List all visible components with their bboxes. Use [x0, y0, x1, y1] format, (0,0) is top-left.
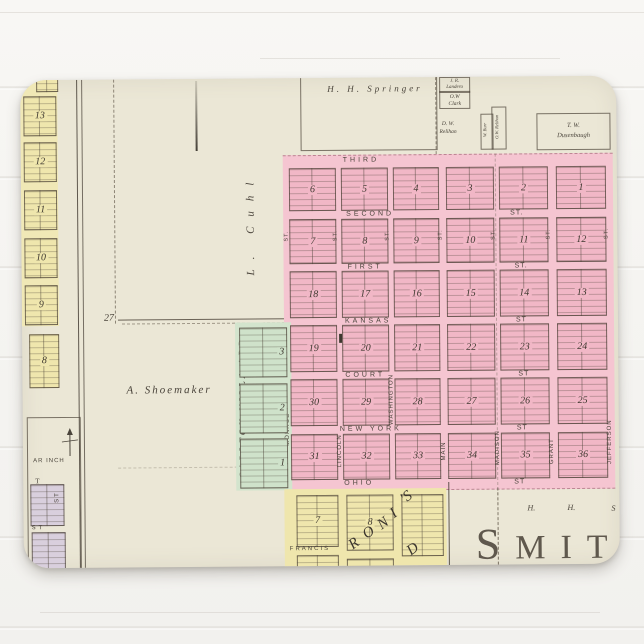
street-label-st: ST	[516, 316, 527, 323]
product-photo: { "palette": { "paper": "#ebe7d6", "pink…	[0, 0, 644, 644]
street-label-ohio: OHIO	[344, 480, 374, 487]
town-title: SMITH	[476, 521, 620, 566]
map-block: 28	[394, 378, 440, 425]
map-block: 22	[447, 324, 495, 371]
road-line	[81, 80, 86, 568]
mousepad: LOCUST 8 27 A. Shoemaker L. Cuhl AR INCH…	[20, 76, 620, 569]
street-label-lincoln: LINCOLN	[337, 433, 343, 469]
wall-groove	[0, 12, 644, 13]
street-label-first: FIRST	[348, 264, 383, 271]
dusenbaugh-parcel: T. W. Dusenbaugh	[536, 113, 610, 151]
map-block: 25	[557, 377, 607, 424]
map-block: 32	[343, 433, 390, 479]
map-block: 31	[291, 434, 338, 480]
street-label-st-vertical: ST.	[284, 226, 290, 246]
map-block: 2	[499, 166, 548, 209]
street-label-st: ST	[514, 478, 525, 485]
street-label-second: SECOND	[346, 210, 394, 217]
owner-label-burr: W. Burr	[483, 114, 488, 146]
owner-label-relihan: D. W. Relihan	[439, 121, 456, 137]
street-label-st: ST.	[510, 209, 523, 216]
owner-label-dusenbaugh: T. W.	[537, 121, 609, 131]
map-block: 6	[289, 168, 336, 211]
street-label-madison: MADISON	[495, 427, 501, 469]
street-label-st-vertical: ST.	[604, 223, 610, 243]
street-label-court: COURT	[345, 371, 385, 378]
map-block: 34	[448, 433, 496, 479]
section-number: 27	[104, 314, 114, 324]
street-label-third: THIRD	[343, 157, 379, 164]
lavender-block-partial	[32, 532, 66, 568]
street-label-main: MAIN	[441, 433, 447, 469]
street-label-st: ST	[518, 370, 529, 377]
map-block: 30	[290, 379, 337, 426]
map-block-8-left: 8	[29, 334, 59, 388]
owner-label-springer: H. H. Springer	[327, 84, 423, 94]
map-block: 18	[290, 271, 337, 318]
map-block: 35	[501, 432, 550, 478]
owner-label-shoemaker: A. Shoemaker	[126, 385, 211, 397]
map-block: 36	[558, 432, 608, 478]
owner-label-relihan-v: O.W. Relihan	[495, 108, 500, 146]
map-block: 12	[556, 217, 606, 262]
street-label-grant: GRANT	[549, 434, 555, 468]
map-block-left: 11	[24, 190, 57, 230]
owner-label-right: H.	[527, 504, 535, 512]
street-label-st-vertical: ST.	[491, 224, 497, 244]
map-block-partial	[297, 555, 339, 568]
map-block: 14	[500, 269, 549, 316]
map-block: 17	[342, 270, 389, 317]
map-block: 21	[394, 324, 440, 371]
map-block: 9	[393, 218, 439, 263]
wall-groove	[40, 612, 600, 613]
map-block-left: 12	[24, 142, 57, 182]
section-line	[118, 318, 290, 320]
street-label-st-vertical: ST.	[438, 225, 444, 245]
map-block-green: 2	[239, 383, 287, 433]
clark-parcel: O.W Clark	[439, 91, 470, 109]
owner-label-cuhl: L. Cuhl	[245, 154, 257, 294]
street-label-st-vertical: ST.	[546, 224, 552, 244]
map-block: 8	[341, 218, 388, 263]
map-block: 15	[447, 270, 495, 317]
crease-mark	[195, 81, 198, 151]
map-block: 24	[557, 323, 607, 370]
map-block: 16	[394, 270, 440, 317]
street-label-st: ST	[517, 424, 528, 431]
map-block-left: 13	[23, 96, 56, 136]
owner-label-right: H.	[567, 504, 575, 512]
map-block: 27	[447, 378, 495, 425]
map-block: 20	[342, 324, 389, 371]
owner-label-right: S	[611, 505, 615, 513]
map-block: 5	[341, 167, 388, 210]
map-block: 4	[393, 167, 439, 210]
map-block: 26	[500, 377, 549, 424]
map-block-partial	[36, 76, 58, 92]
section-dash-line	[113, 80, 116, 324]
street-label-kansas: KANSAS	[345, 317, 391, 324]
street-label-jefferson: JEFFERSON	[607, 416, 613, 468]
map-block-partial	[347, 558, 394, 567]
street-label-st-vertical: ST.	[385, 225, 391, 245]
map-block: 10	[446, 218, 494, 263]
label-st-vert: ST	[54, 487, 60, 507]
street-label-washington: WASHINGTON	[388, 370, 394, 428]
map-block: 7	[289, 219, 336, 264]
map-block: 33	[395, 433, 441, 479]
map-block-green: 3	[239, 327, 287, 377]
map-block: 19	[290, 325, 337, 372]
map-block: 29	[342, 378, 389, 425]
map-block: 1	[556, 166, 606, 209]
street-label-francis: FRANCIS	[290, 546, 330, 552]
map-block-left: 9	[25, 285, 58, 325]
label-st: ST	[32, 525, 46, 531]
wall-groove	[260, 58, 560, 59]
map-block-green: 1	[240, 438, 288, 488]
addition-boundary	[448, 482, 450, 565]
map-block-7-south: 7	[296, 495, 338, 547]
map-block: 23	[500, 323, 549, 370]
street-label-st: ST.	[515, 262, 528, 269]
map-block: 3	[446, 167, 494, 210]
map-block-left: 10	[24, 238, 57, 278]
map-block: 13	[557, 269, 607, 316]
street-label-st-vertical: ST.	[333, 226, 339, 246]
map-block: 11	[499, 217, 548, 262]
